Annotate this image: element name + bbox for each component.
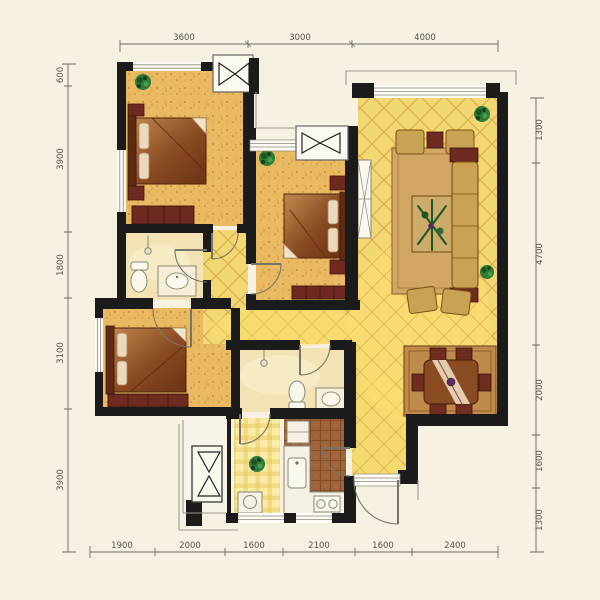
floor-plan-svg: 3600 3000 4000 1900 2000 1600 2100 1600 … bbox=[0, 0, 600, 600]
plant-icon bbox=[259, 150, 275, 166]
armchair bbox=[406, 286, 437, 314]
dining-chair bbox=[456, 348, 472, 361]
dining-set bbox=[404, 346, 496, 416]
foyer-light-patch bbox=[348, 375, 408, 485]
armchair bbox=[396, 130, 424, 154]
pillow bbox=[117, 361, 127, 385]
faucet-dot bbox=[176, 276, 178, 278]
nightstand bbox=[128, 104, 144, 116]
dim-label: 3100 bbox=[56, 342, 66, 364]
dim-label: 1800 bbox=[56, 254, 66, 276]
toilet-icon bbox=[289, 381, 305, 403]
nightstand bbox=[330, 176, 346, 190]
dim-label: 600 bbox=[56, 67, 66, 83]
faucet-dot bbox=[295, 461, 298, 464]
leaf-dot bbox=[422, 212, 429, 219]
ac-unit-icon bbox=[192, 446, 222, 502]
sofa bbox=[452, 162, 478, 288]
dim-label: 3600 bbox=[173, 33, 195, 43]
dim-label: 1900 bbox=[111, 541, 133, 551]
dim-label: 3900 bbox=[56, 469, 66, 491]
dim-label: 2000 bbox=[179, 541, 201, 551]
toilet-tank bbox=[131, 262, 148, 270]
ac-unit-icon bbox=[296, 126, 348, 160]
hall-cabinet bbox=[358, 160, 371, 238]
plant-icon bbox=[480, 265, 494, 279]
bath2-highlight bbox=[240, 355, 320, 395]
pillow bbox=[117, 333, 127, 357]
stove-icon bbox=[314, 496, 340, 512]
window-icon bbox=[238, 513, 284, 523]
window-icon bbox=[296, 513, 332, 523]
living-room-furniture bbox=[392, 130, 478, 316]
low-cabinet bbox=[292, 286, 346, 299]
pillow bbox=[139, 153, 149, 179]
armchair bbox=[441, 288, 472, 315]
window-icon bbox=[117, 150, 126, 212]
headboard bbox=[106, 326, 114, 394]
dim-label: 1600 bbox=[243, 541, 265, 551]
bedroom3-furniture bbox=[106, 326, 188, 407]
service-balcony-items bbox=[238, 492, 262, 513]
nightstand bbox=[128, 186, 144, 200]
shower-head-icon bbox=[261, 360, 267, 366]
dim-label: 1300 bbox=[535, 119, 545, 141]
dim-label: 4000 bbox=[414, 33, 436, 43]
dim-label: 1600 bbox=[372, 541, 394, 551]
pillow bbox=[328, 200, 338, 224]
dim-label: 1300 bbox=[535, 509, 545, 531]
side-table bbox=[427, 132, 443, 148]
toilet-icon bbox=[131, 270, 147, 292]
sink-icon bbox=[166, 273, 188, 289]
dim-label: 2000 bbox=[535, 379, 545, 401]
dim-label: 3900 bbox=[56, 148, 66, 170]
shower-head-icon bbox=[145, 248, 151, 254]
plant-icon bbox=[474, 106, 490, 122]
sink-icon bbox=[322, 392, 340, 406]
window-icon bbox=[250, 140, 296, 151]
window-icon bbox=[133, 62, 201, 71]
floor-plan-image: 3600 3000 4000 1900 2000 1600 2100 1600 … bbox=[0, 0, 600, 600]
dim-label: 3000 bbox=[289, 33, 311, 43]
dining-chair bbox=[430, 348, 446, 361]
ac-unit-icon bbox=[213, 55, 253, 92]
leaf-dot bbox=[437, 228, 444, 235]
window-icon bbox=[95, 318, 103, 372]
nightstand bbox=[330, 260, 346, 274]
window-icon bbox=[374, 85, 486, 98]
dining-chair bbox=[479, 374, 491, 391]
pillow bbox=[328, 228, 338, 252]
dining-chair bbox=[412, 374, 424, 391]
pillow bbox=[139, 123, 149, 149]
dim-label: 1600 bbox=[535, 450, 545, 472]
master-bed bbox=[128, 104, 206, 224]
centerpiece bbox=[447, 378, 455, 386]
plant-icon bbox=[135, 74, 151, 90]
dim-label: 2100 bbox=[308, 541, 330, 551]
dim-label: 4700 bbox=[535, 243, 545, 265]
entry-door-band bbox=[354, 474, 400, 486]
dim-label: 2400 bbox=[444, 541, 466, 551]
sofa-end-table bbox=[450, 148, 478, 162]
flower-dot bbox=[428, 223, 434, 229]
wall-post bbox=[249, 58, 259, 94]
dresser bbox=[132, 206, 194, 224]
plant-icon bbox=[249, 456, 265, 472]
headboard bbox=[128, 116, 136, 186]
